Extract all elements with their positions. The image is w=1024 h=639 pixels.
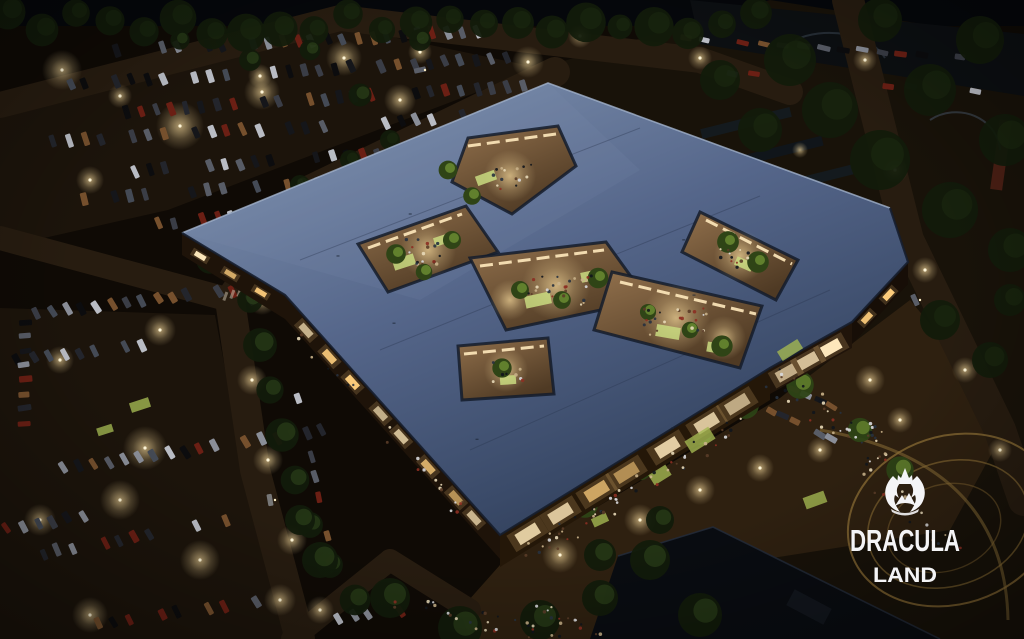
brand-subtext: LAND — [873, 564, 937, 587]
brand-text: DRACULA — [850, 523, 960, 558]
scene-canvas: DRACULA LAND — [0, 0, 1024, 639]
aerial-night-scene: DRACULA LAND — [0, 0, 1024, 639]
